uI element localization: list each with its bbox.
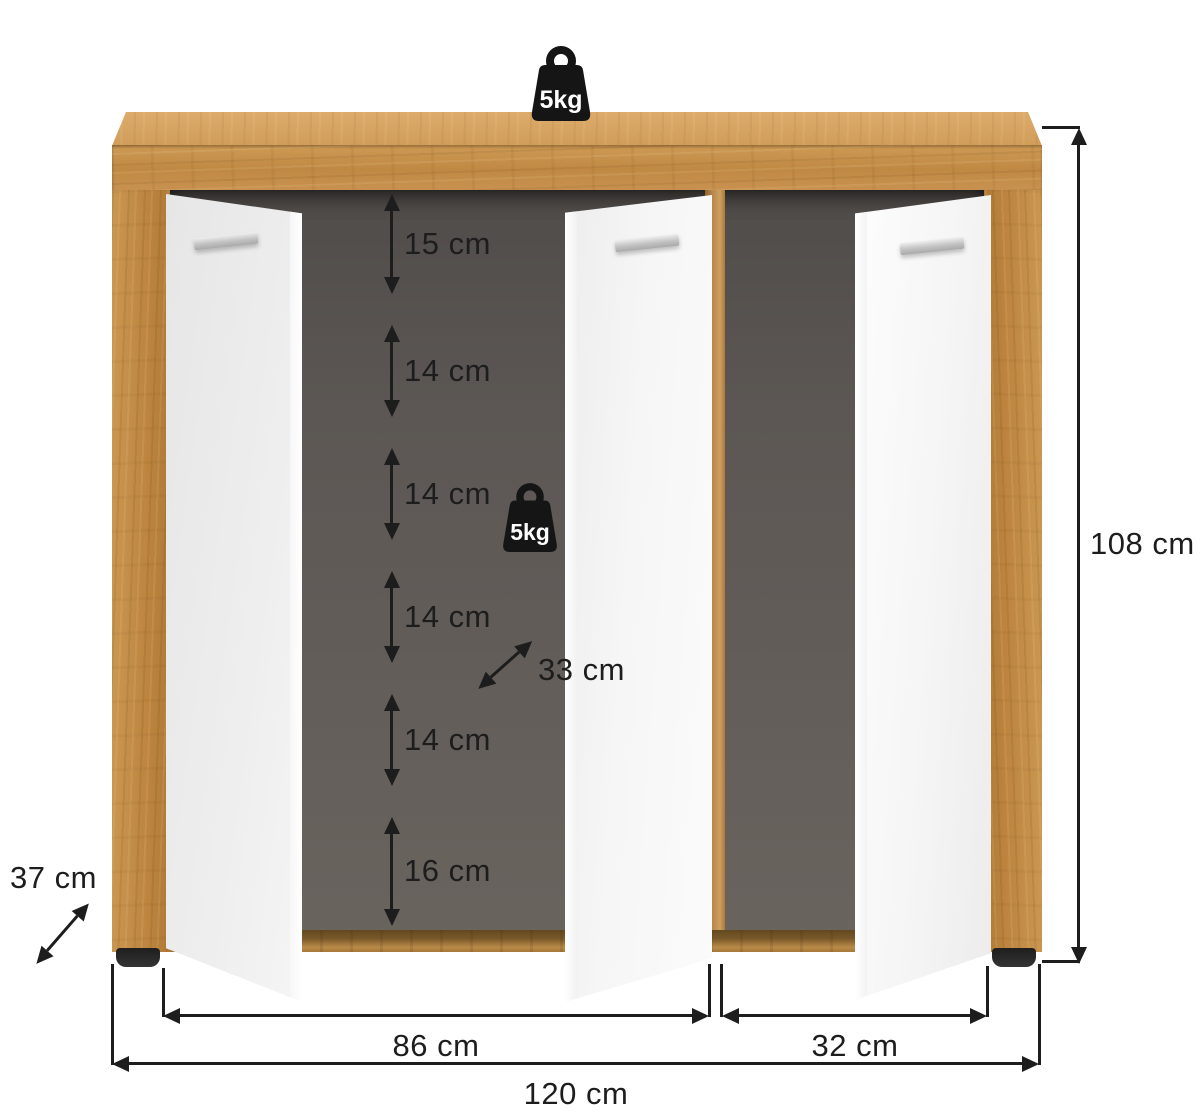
cabinet-left-side-panel: [112, 190, 170, 952]
right-width-dim-arrow: [722, 1007, 987, 1024]
door-right: [855, 195, 991, 1000]
diagram-canvas: 5kg 5kg 15 cm 14 cm 14 cm 14 cm 14 cm 16…: [0, 0, 1200, 1117]
weight-icon-shelf: 5kg: [496, 479, 564, 557]
shelf-gap-arrow-6: [383, 817, 400, 926]
shelf-depth-label: 33 cm: [538, 648, 625, 692]
weight-label: 5kg: [539, 86, 582, 114]
dim-extension-line: [111, 964, 114, 1065]
door-edge: [565, 195, 577, 1002]
cabinet-foot-left: [116, 948, 160, 967]
depth-dim-arrow: [30, 898, 95, 970]
weight-icon-top: 5kg: [524, 44, 598, 124]
shelf-gap-label-3: 14 cm: [404, 472, 491, 516]
shelf-gap-label-5: 14 cm: [404, 718, 491, 762]
shelf-gap-arrow-4: [383, 571, 400, 663]
shelf-gap-label-6: 16 cm: [404, 849, 491, 893]
shelf-gap-label-2: 14 cm: [404, 349, 491, 393]
shelf-gap-label-4: 14 cm: [404, 595, 491, 639]
shelf-gap-label-1: 15 cm: [404, 222, 491, 266]
cabinet-right-side-panel: [984, 190, 1042, 952]
depth-dim-label: 37 cm: [10, 856, 97, 900]
door-handle: [194, 232, 259, 251]
height-dim-arrow: [1070, 128, 1087, 964]
height-dim-label: 108 cm: [1090, 522, 1195, 566]
cabinet-foot-right: [992, 948, 1036, 967]
door-edge: [855, 195, 867, 1000]
shelf-gap-arrow-2: [383, 325, 400, 417]
shelf-gap-arrow-3: [383, 448, 400, 540]
weight-label: 5kg: [510, 519, 550, 545]
door-handle: [900, 237, 965, 256]
left-width-dim-arrow: [163, 1007, 709, 1024]
door-left: [166, 194, 302, 1002]
shelf-gap-arrow-5: [383, 694, 400, 786]
door-edge: [290, 194, 302, 1002]
cabinet-top-panel: [112, 145, 1042, 190]
total-width-dim-arrow: [112, 1055, 1039, 1072]
shelf-gap-arrow-1: [383, 194, 400, 294]
dim-extension-line: [1038, 964, 1041, 1065]
door-handle: [615, 234, 680, 253]
total-width-dim-label: 120 cm: [500, 1072, 652, 1116]
door-middle: [565, 195, 712, 1002]
